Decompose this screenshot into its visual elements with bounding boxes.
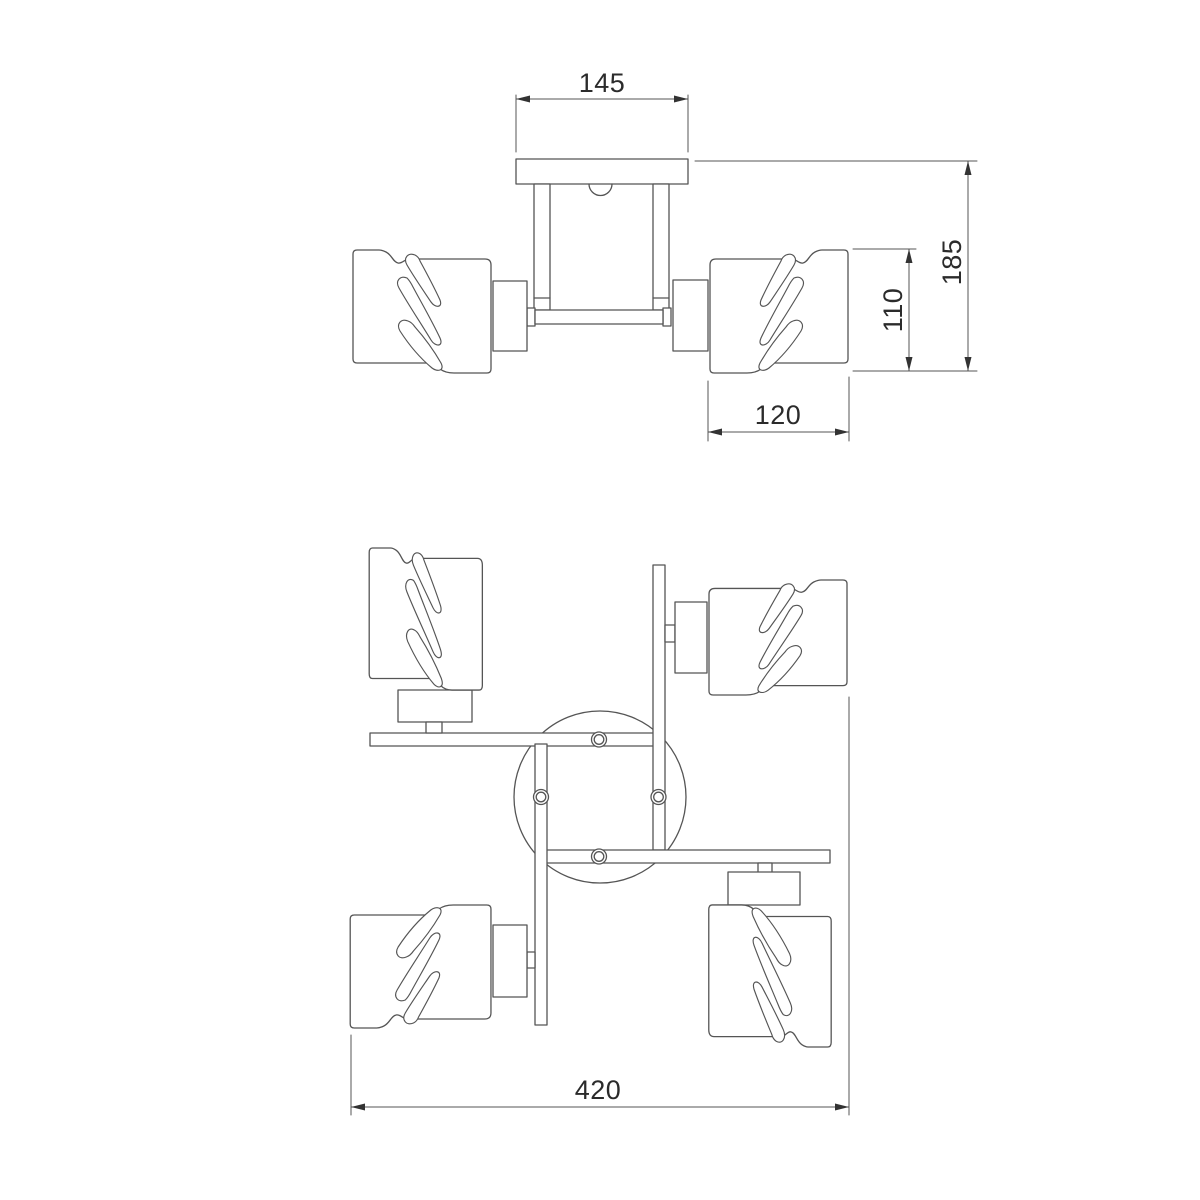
arrowhead-bottom [906, 357, 913, 371]
stem [426, 722, 442, 733]
shade [709, 905, 831, 1047]
shade [369, 548, 482, 690]
plan-lamp-bottom-left [350, 905, 535, 1028]
front-left-lamp [353, 250, 527, 373]
hanger-rods [534, 184, 669, 310]
dimension-shade-height: 110 [853, 249, 916, 371]
dimension-total-width-label: 420 [575, 1075, 622, 1105]
right-shade [710, 250, 848, 373]
arm-up-vertical [653, 565, 665, 850]
front-right-lamp [673, 250, 848, 373]
arrowhead-left [351, 1104, 365, 1111]
arm-left-horizontal [370, 733, 655, 746]
dimension-shade-width-label: 120 [755, 400, 802, 430]
plan-lamp-top-left [369, 548, 482, 733]
arrowhead-left [516, 96, 530, 103]
dimension-plate-width: 145 [516, 68, 688, 152]
left-rod [534, 184, 550, 310]
drawing-page: 145 [0, 0, 1200, 1200]
socket [675, 602, 707, 673]
stem [527, 952, 535, 968]
arm-right-horizontal [545, 850, 830, 863]
arrowhead-bottom [965, 357, 972, 371]
arm-end-cap-left [527, 308, 535, 326]
dimension-shade-height-label: 110 [878, 288, 908, 333]
right-rod [653, 184, 669, 310]
arrowhead-right [674, 96, 688, 103]
plan-view: 420 [350, 548, 849, 1115]
cross-arm [527, 308, 671, 326]
center-screw-dome [589, 184, 612, 196]
arm-down-vertical [535, 744, 547, 1025]
socket [728, 872, 800, 905]
arrowhead-top [965, 161, 972, 175]
plan-lamp-bottom-right [709, 863, 831, 1047]
arrowhead-right [835, 429, 849, 436]
left-socket [493, 281, 527, 351]
mounting-plate [516, 159, 688, 184]
arrowhead-right [835, 1104, 849, 1111]
stem [665, 625, 675, 642]
dimension-shade-width: 120 [708, 377, 849, 441]
socket [398, 690, 472, 722]
shade [350, 905, 491, 1028]
right-socket [673, 280, 708, 351]
left-shade [353, 250, 491, 373]
technical-drawing: 145 [0, 0, 1200, 1200]
arrowhead-top [906, 249, 913, 263]
arm-end-cap-right [663, 308, 671, 326]
fixing-screws [534, 732, 667, 864]
socket [493, 925, 527, 997]
dimension-plate-width-label: 145 [579, 68, 626, 98]
shade [709, 580, 847, 695]
dimension-total-width: 420 [351, 697, 849, 1115]
arrowhead-left [708, 429, 722, 436]
front-view: 145 [353, 68, 977, 441]
plan-lamp-top-right [665, 580, 847, 695]
arm-bar [535, 310, 663, 324]
dimension-total-height-label: 185 [937, 239, 967, 286]
